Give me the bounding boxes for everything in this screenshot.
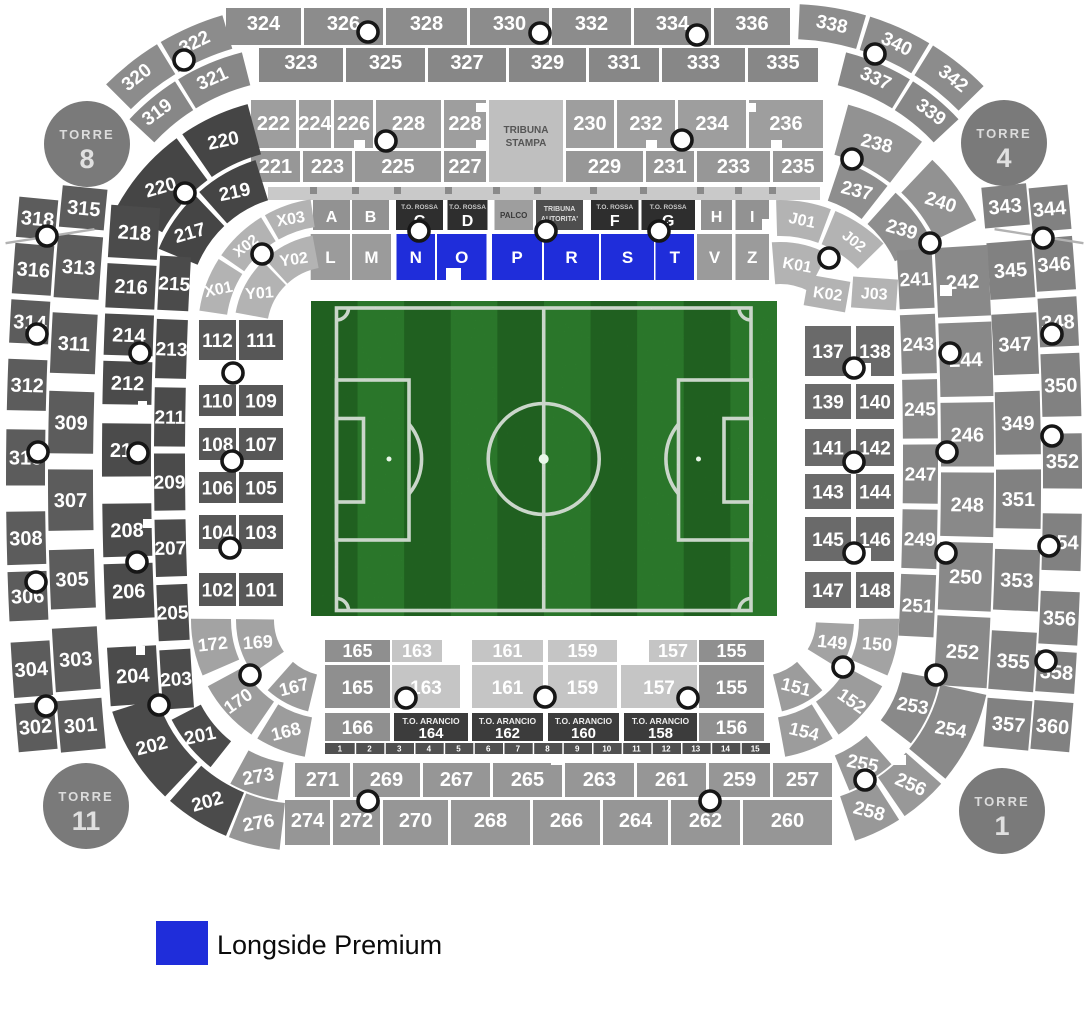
svg-text:308: 308 [9, 528, 43, 551]
svg-text:353: 353 [1000, 569, 1034, 592]
svg-text:229: 229 [588, 156, 621, 178]
svg-text:356: 356 [1042, 607, 1076, 631]
svg-text:T.O. ROSSA: T.O. ROSSA [650, 204, 687, 211]
svg-text:269: 269 [370, 769, 403, 791]
svg-text:157: 157 [658, 641, 688, 661]
svg-text:222: 222 [257, 113, 290, 135]
svg-text:233: 233 [717, 156, 750, 178]
svg-text:208: 208 [110, 520, 144, 543]
svg-text:T.O. ROSSA: T.O. ROSSA [401, 204, 438, 211]
svg-text:274: 274 [291, 810, 325, 832]
svg-text:4: 4 [427, 745, 432, 754]
svg-text:165: 165 [342, 678, 374, 699]
svg-text:102: 102 [202, 581, 234, 602]
svg-text:234: 234 [695, 113, 729, 135]
svg-text:164: 164 [418, 725, 444, 742]
svg-text:204: 204 [115, 664, 151, 688]
svg-text:263: 263 [583, 769, 616, 791]
svg-text:PALCO: PALCO [500, 211, 527, 220]
svg-text:327: 327 [450, 52, 483, 74]
svg-text:209: 209 [154, 472, 186, 493]
svg-text:109: 109 [245, 392, 277, 413]
svg-text:103: 103 [245, 523, 277, 544]
svg-text:TORRE: TORRE [976, 126, 1031, 141]
svg-text:166: 166 [342, 718, 374, 739]
svg-text:268: 268 [474, 810, 507, 832]
svg-text:260: 260 [771, 810, 804, 832]
svg-text:243: 243 [902, 334, 934, 356]
svg-text:B: B [365, 209, 377, 226]
svg-text:150: 150 [861, 633, 892, 655]
svg-text:248: 248 [950, 494, 984, 516]
svg-text:9: 9 [575, 745, 580, 754]
svg-text:266: 266 [550, 810, 583, 832]
svg-text:249: 249 [904, 529, 936, 551]
svg-text:156: 156 [716, 718, 748, 739]
svg-text:349: 349 [1001, 413, 1035, 436]
svg-text:312: 312 [10, 374, 44, 397]
svg-text:218: 218 [117, 221, 152, 245]
svg-text:149: 149 [816, 631, 848, 654]
svg-text:12: 12 [662, 745, 671, 754]
svg-text:169: 169 [242, 631, 273, 653]
svg-text:4: 4 [996, 143, 1011, 173]
svg-text:271: 271 [306, 769, 339, 791]
svg-text:307: 307 [54, 490, 88, 512]
svg-text:303: 303 [58, 648, 93, 672]
svg-text:T.O. ROSSA: T.O. ROSSA [596, 204, 633, 211]
svg-text:265: 265 [511, 769, 544, 791]
svg-text:228: 228 [448, 113, 481, 135]
svg-text:I: I [750, 209, 754, 226]
svg-text:316: 316 [16, 258, 51, 282]
svg-text:250: 250 [949, 566, 983, 589]
svg-text:343: 343 [987, 195, 1022, 220]
svg-text:330: 330 [493, 13, 526, 35]
svg-text:206: 206 [112, 580, 146, 603]
svg-text:247: 247 [905, 465, 937, 486]
svg-text:3: 3 [397, 745, 402, 754]
svg-text:236: 236 [769, 113, 802, 135]
svg-text:225: 225 [381, 156, 414, 178]
svg-text:O: O [455, 248, 468, 267]
svg-text:323: 323 [284, 52, 317, 74]
svg-text:13: 13 [691, 745, 700, 754]
svg-text:141: 141 [812, 439, 844, 460]
svg-text:262: 262 [689, 810, 722, 832]
svg-text:TORRE: TORRE [974, 794, 1029, 809]
svg-text:N: N [410, 248, 422, 267]
svg-text:272: 272 [340, 810, 373, 832]
svg-text:159: 159 [567, 678, 599, 699]
svg-text:STAMPA: STAMPA [506, 138, 547, 149]
svg-text:305: 305 [55, 568, 89, 591]
svg-text:324: 324 [247, 13, 281, 35]
svg-text:144: 144 [859, 483, 891, 504]
svg-text:F: F [610, 213, 620, 230]
svg-text:139: 139 [812, 393, 844, 414]
svg-text:227: 227 [448, 156, 481, 178]
svg-text:270: 270 [399, 810, 432, 832]
svg-text:329: 329 [531, 52, 564, 74]
svg-text:158: 158 [648, 725, 673, 742]
svg-text:311: 311 [57, 333, 90, 356]
svg-text:107: 107 [245, 435, 277, 456]
svg-text:355: 355 [996, 650, 1031, 674]
svg-text:101: 101 [245, 581, 277, 602]
svg-text:165: 165 [342, 641, 372, 661]
svg-text:R: R [565, 248, 577, 267]
svg-text:315: 315 [66, 197, 101, 222]
svg-text:M: M [364, 248, 378, 267]
svg-text:241: 241 [899, 269, 932, 292]
svg-text:A: A [326, 209, 338, 226]
svg-text:155: 155 [716, 641, 746, 661]
svg-text:TORRE: TORRE [59, 127, 114, 142]
svg-text:J03: J03 [860, 285, 888, 303]
svg-text:147: 147 [812, 581, 844, 602]
svg-text:335: 335 [766, 52, 799, 74]
svg-text:309: 309 [54, 412, 88, 435]
svg-text:11: 11 [72, 806, 101, 836]
svg-text:346: 346 [1037, 253, 1072, 277]
svg-text:230: 230 [573, 113, 606, 135]
svg-text:106: 106 [202, 479, 234, 500]
svg-text:357: 357 [991, 713, 1026, 738]
svg-text:1: 1 [994, 811, 1009, 841]
svg-text:L: L [325, 248, 335, 267]
svg-text:334: 334 [656, 13, 690, 35]
svg-text:TRIBUNA: TRIBUNA [544, 206, 576, 213]
svg-text:302: 302 [18, 715, 53, 740]
svg-text:213: 213 [155, 339, 187, 361]
svg-text:211: 211 [154, 408, 185, 429]
svg-text:350: 350 [1044, 374, 1078, 397]
svg-text:232: 232 [629, 113, 662, 135]
svg-text:137: 137 [812, 342, 844, 363]
svg-text:D: D [462, 213, 474, 230]
svg-text:14: 14 [721, 745, 730, 754]
svg-text:352: 352 [1046, 451, 1079, 473]
svg-text:215: 215 [158, 273, 191, 296]
svg-text:246: 246 [951, 424, 985, 446]
svg-text:105: 105 [245, 479, 277, 500]
svg-text:304: 304 [14, 658, 50, 682]
svg-text:332: 332 [575, 13, 608, 35]
svg-text:TORRE: TORRE [58, 789, 113, 804]
svg-text:1: 1 [338, 745, 343, 754]
svg-text:T.O. ROSSA: T.O. ROSSA [449, 204, 486, 211]
svg-text:2: 2 [367, 745, 372, 754]
svg-text:8: 8 [79, 144, 94, 174]
svg-text:205: 205 [156, 602, 189, 624]
svg-text:160: 160 [571, 725, 596, 742]
svg-text:301: 301 [63, 714, 98, 739]
svg-text:347: 347 [998, 333, 1032, 357]
svg-text:226: 226 [337, 113, 370, 135]
svg-text:143: 143 [812, 483, 844, 504]
svg-text:344: 344 [1032, 197, 1068, 222]
svg-text:331: 331 [607, 52, 640, 74]
svg-text:148: 148 [859, 581, 891, 602]
svg-text:162: 162 [495, 725, 520, 742]
svg-text:110: 110 [202, 392, 233, 413]
svg-text:161: 161 [492, 678, 524, 699]
svg-text:345: 345 [993, 259, 1028, 283]
svg-text:207: 207 [154, 538, 186, 560]
svg-text:221: 221 [259, 156, 292, 178]
svg-text:212: 212 [111, 373, 145, 396]
svg-text:203: 203 [160, 669, 193, 692]
svg-text:163: 163 [402, 641, 432, 661]
svg-text:140: 140 [859, 393, 891, 414]
svg-text:112: 112 [202, 331, 233, 352]
svg-text:245: 245 [904, 399, 936, 421]
svg-text:267: 267 [440, 769, 473, 791]
svg-text:S: S [622, 248, 633, 267]
svg-text:328: 328 [410, 13, 443, 35]
svg-text:H: H [711, 209, 723, 226]
svg-text:264: 264 [619, 810, 653, 832]
svg-text:157: 157 [643, 678, 675, 699]
svg-text:326: 326 [327, 13, 360, 35]
svg-text:259: 259 [723, 769, 756, 791]
svg-text:257: 257 [786, 769, 819, 791]
svg-text:5: 5 [456, 745, 461, 754]
svg-text:228: 228 [392, 113, 425, 135]
svg-text:V: V [709, 248, 721, 267]
svg-text:159: 159 [567, 641, 597, 661]
svg-text:351: 351 [1002, 489, 1036, 511]
svg-text:15: 15 [751, 745, 760, 754]
svg-text:223: 223 [311, 156, 344, 178]
svg-text:Y01: Y01 [245, 284, 275, 303]
svg-text:360: 360 [1035, 715, 1070, 740]
svg-text:325: 325 [369, 52, 402, 74]
svg-text:252: 252 [945, 641, 980, 665]
svg-text:235: 235 [781, 156, 814, 178]
svg-text:6: 6 [486, 745, 491, 754]
svg-text:333: 333 [687, 52, 720, 74]
svg-text:11: 11 [632, 745, 641, 754]
svg-text:161: 161 [492, 641, 522, 661]
svg-text:111: 111 [246, 331, 276, 352]
svg-text:7: 7 [516, 745, 521, 754]
svg-text:138: 138 [859, 342, 891, 363]
svg-text:Longside Premium: Longside Premium [217, 930, 442, 960]
svg-text:145: 145 [812, 530, 844, 551]
svg-text:P: P [511, 248, 522, 267]
svg-text:155: 155 [716, 678, 748, 699]
svg-text:261: 261 [655, 769, 688, 791]
svg-text:172: 172 [197, 633, 229, 656]
svg-text:Z: Z [747, 248, 757, 267]
svg-text:313: 313 [61, 256, 96, 280]
svg-text:T: T [670, 248, 681, 267]
svg-text:224: 224 [298, 113, 332, 135]
svg-text:251: 251 [901, 595, 934, 617]
svg-text:336: 336 [735, 13, 768, 35]
svg-text:8: 8 [545, 745, 550, 754]
svg-text:216: 216 [114, 276, 148, 300]
svg-text:TRIBUNA: TRIBUNA [504, 125, 549, 136]
svg-text:10: 10 [602, 745, 611, 754]
svg-text:231: 231 [653, 156, 686, 178]
